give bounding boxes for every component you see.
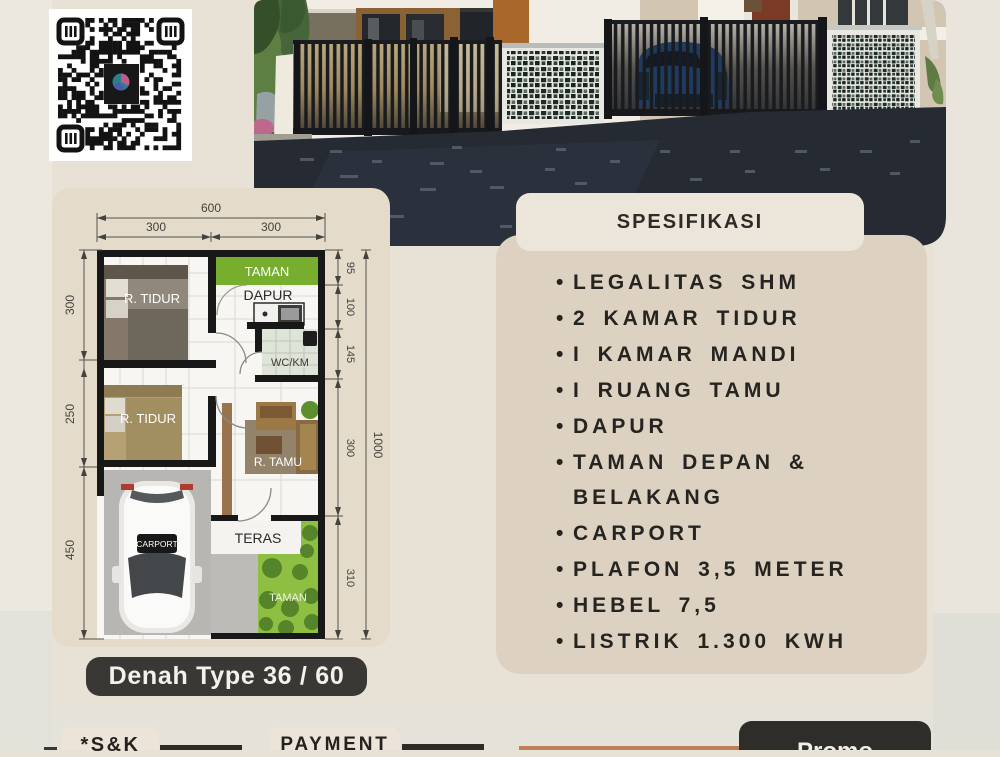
svg-text:300: 300 [261,220,281,234]
svg-text:600: 600 [201,201,221,215]
svg-text:450: 450 [63,540,77,560]
svg-text:DAPUR: DAPUR [243,287,292,303]
svg-text:95: 95 [344,262,356,274]
svg-text:R. TIDUR: R. TIDUR [124,291,180,306]
svg-text:CARPORT: CARPORT [136,539,177,549]
svg-text:R. TAMU: R. TAMU [254,455,302,469]
svg-text:100: 100 [344,298,356,316]
svg-text:145: 145 [344,345,356,363]
svg-text:TAMAN: TAMAN [245,264,290,279]
svg-text:300: 300 [63,295,77,315]
svg-text:TERAS: TERAS [235,530,282,546]
svg-text:R. TIDUR: R. TIDUR [120,411,176,426]
svg-text:TAMAN: TAMAN [269,592,307,604]
svg-text:310: 310 [344,569,356,587]
svg-text:1000: 1000 [371,432,385,459]
svg-text:300: 300 [344,439,356,457]
svg-text:300: 300 [146,220,166,234]
svg-text:250: 250 [63,404,77,424]
svg-text:WC/KM: WC/KM [271,357,309,369]
